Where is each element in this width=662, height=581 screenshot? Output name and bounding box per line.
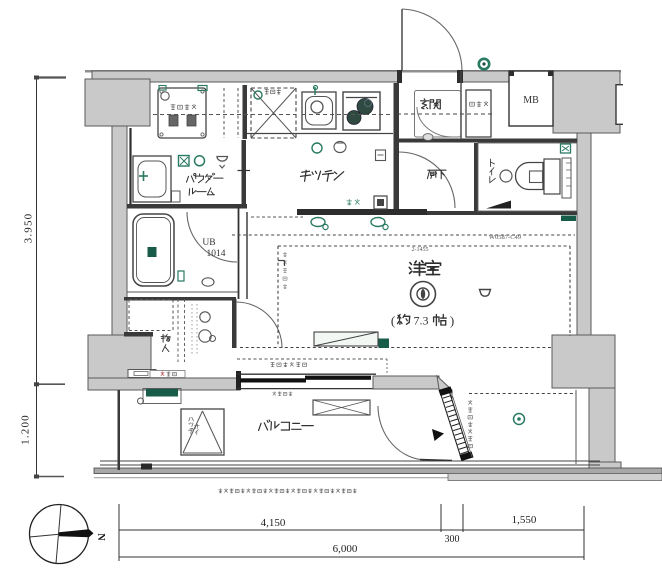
svg-text:MB: MB [523, 95, 539, 106]
svg-text:W0587-C49: W0587-C49 [489, 234, 521, 241]
svg-text:7.3: 7.3 [414, 314, 429, 328]
svg-text:UB: UB [202, 238, 215, 248]
svg-text:1.200: 1.200 [20, 414, 32, 445]
svg-text:3.950: 3.950 [23, 213, 35, 244]
svg-text:2-1455: 2-1455 [412, 247, 429, 253]
svg-text:(: ( [391, 313, 395, 328]
svg-text:4,150: 4,150 [261, 517, 286, 529]
svg-text:1,550: 1,550 [512, 514, 537, 526]
svg-text:300: 300 [445, 534, 460, 545]
svg-text:N: N [95, 533, 106, 541]
svg-text:6,000: 6,000 [333, 543, 358, 555]
svg-text:1014: 1014 [207, 249, 226, 259]
svg-text:): ) [450, 313, 454, 328]
